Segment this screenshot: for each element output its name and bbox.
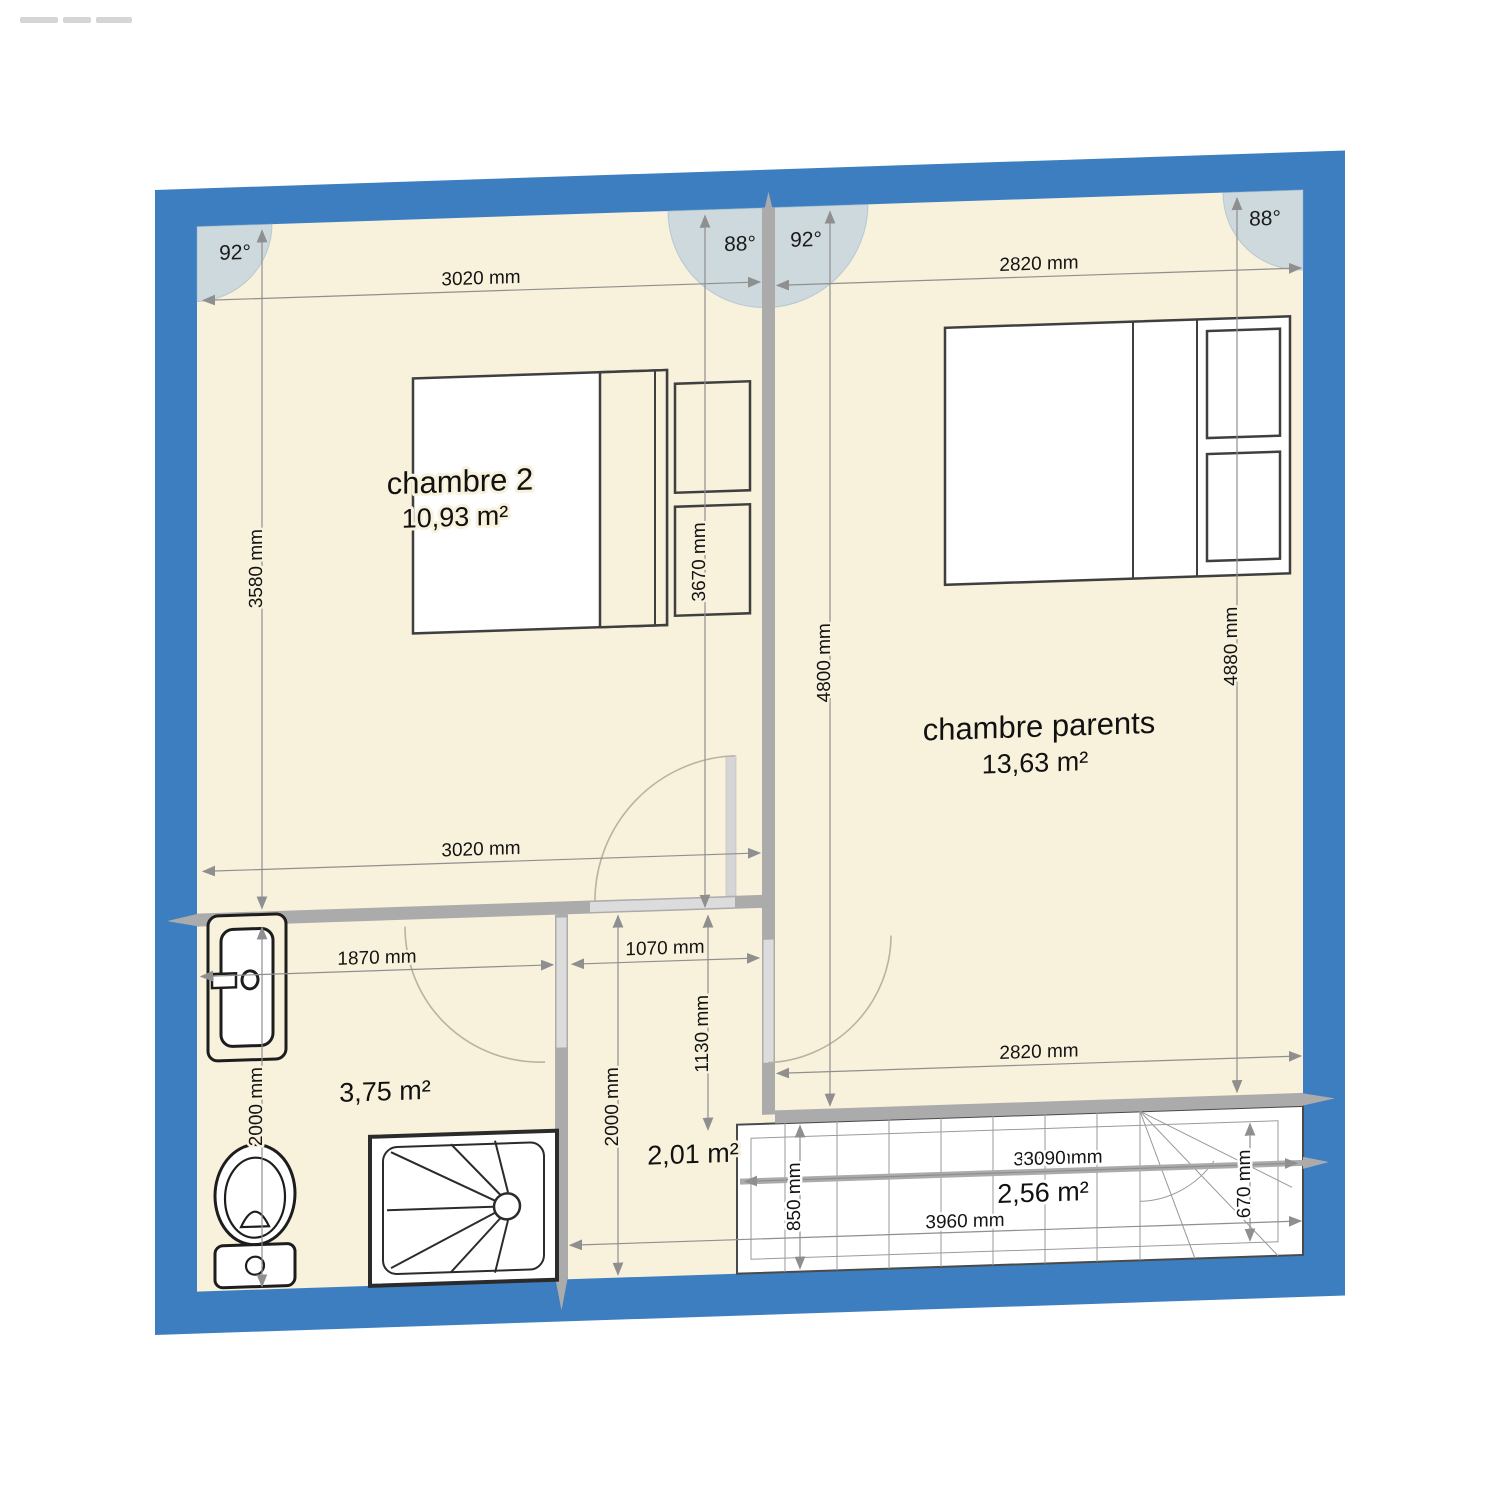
dim-ch2-bed: 3670 mm xyxy=(689,522,710,602)
dim-stairs-right: 670 mm xyxy=(1234,1149,1255,1218)
dim-bath-width: 1870 mm xyxy=(337,946,416,970)
building: 92° 88° 92° 88° 3020 mm 2820 mm 3580 mm … xyxy=(155,151,1345,1335)
angle-label-top-right: 88° xyxy=(1249,207,1281,231)
dim-ch2-bottom: 3020 mm xyxy=(441,838,520,862)
toilet-tank xyxy=(215,1243,295,1288)
angle-label-mid-left: 88° xyxy=(724,232,756,256)
dim-stairs-left: 850 mm xyxy=(784,1162,805,1231)
room-name-chambre2: chambre 2 xyxy=(387,461,533,501)
floor-plan-page: 92° 88° 92° 88° 3020 mm 2820 mm 3580 mm … xyxy=(0,0,1500,1487)
room-area-bathroom: 3,75 m² xyxy=(339,1075,431,1108)
dim-parents-right: 4880 mm xyxy=(1221,606,1242,686)
watermark-text xyxy=(20,17,132,23)
dim-ch2-left: 3580 mm xyxy=(246,529,267,609)
angle-label-mid-right: 92° xyxy=(790,228,822,252)
floor-plan-canvas: 92° 88° 92° 88° 3020 mm 2820 mm 3580 mm … xyxy=(0,0,1500,1487)
room-area-parents: 13,63 m² xyxy=(982,746,1089,780)
dim-hall-height: 2000 mm xyxy=(602,1067,623,1147)
parents-bed xyxy=(945,316,1290,584)
dim-stairs-b: 3090 mm xyxy=(1023,1147,1102,1171)
dim-stairs-width: 3960 mm xyxy=(925,1210,1004,1234)
door-opening-parents xyxy=(764,939,774,1062)
room-area-stairs: 2,56 m² xyxy=(997,1176,1089,1209)
room-area-hall: 2,01 m² xyxy=(647,1138,739,1171)
dim-ch2-top: 3020 mm xyxy=(441,267,520,291)
pillow xyxy=(1207,329,1280,438)
angle-label-top-left: 92° xyxy=(219,241,251,265)
room-area-chambre2: 10,93 m² xyxy=(402,500,509,534)
dim-bath-height: 2000 mm xyxy=(246,1067,267,1147)
dim-hall-width: 1070 mm xyxy=(625,937,704,961)
door-leaf-chambre2 xyxy=(726,756,736,896)
dim-parents-bottom: 2820 mm xyxy=(999,1040,1078,1064)
toilet xyxy=(215,1143,295,1288)
dim-parents-left: 4800 mm xyxy=(814,623,835,703)
dim-parents-top: 2820 mm xyxy=(999,252,1078,276)
pillow xyxy=(1207,452,1280,561)
dim-hall-side: 1130 mm xyxy=(692,995,713,1073)
shower xyxy=(370,1131,557,1286)
shower-drain xyxy=(494,1193,520,1220)
door-opening-bathroom xyxy=(557,917,567,1047)
sink xyxy=(208,914,286,1062)
